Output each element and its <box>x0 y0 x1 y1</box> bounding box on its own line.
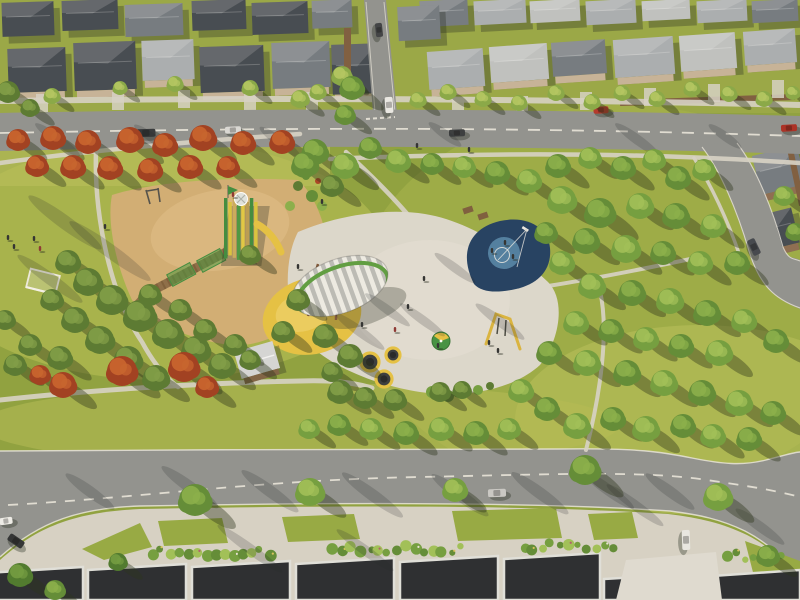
park-aerial-scene <box>0 0 800 600</box>
sunlight-overlay <box>0 0 800 600</box>
aerial-park-render <box>0 0 800 600</box>
